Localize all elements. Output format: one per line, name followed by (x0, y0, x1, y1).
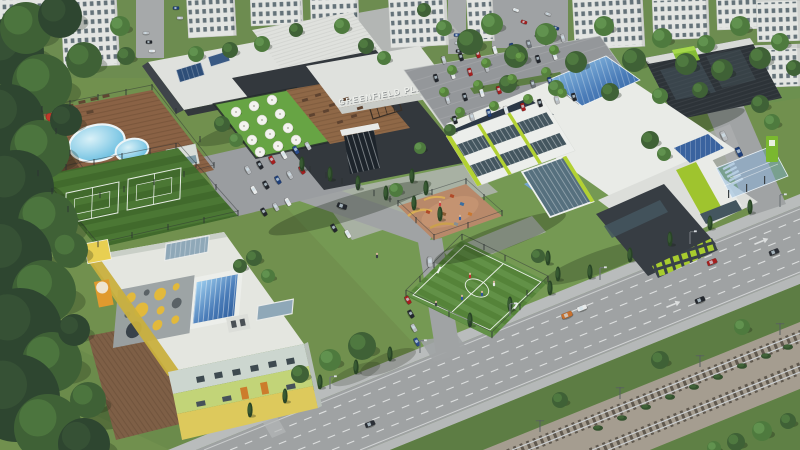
tree-highlight (558, 89, 564, 95)
person-body (481, 293, 483, 297)
tree-highlight (60, 316, 78, 334)
person (439, 201, 441, 206)
fence-post (470, 321, 471, 327)
tree-highlight (516, 53, 522, 59)
tree-highlight (415, 143, 422, 150)
bush (689, 384, 699, 390)
tree-highlight (189, 47, 198, 56)
tree-highlight (418, 4, 426, 12)
tree-highlight (772, 35, 782, 45)
bush (665, 394, 675, 400)
fence-post (68, 206, 69, 212)
fence-post (176, 108, 177, 114)
tree-highlight (482, 59, 488, 65)
cypress-highlight (410, 170, 413, 180)
tree-highlight (550, 46, 556, 52)
light-pole (509, 304, 510, 316)
tree-highlight (445, 125, 452, 132)
tree-highlight (754, 423, 765, 434)
tree-highlight (234, 260, 242, 268)
mast-pole (780, 323, 781, 335)
bush (593, 425, 603, 431)
tree-highlight (732, 18, 743, 29)
fence-post (358, 184, 359, 190)
fence-post (70, 100, 71, 106)
tree-highlight (359, 39, 368, 48)
bush (783, 344, 793, 350)
cypress-highlight (248, 404, 251, 414)
cypress-highlight (283, 390, 286, 400)
fence-post (154, 179, 155, 185)
cypress-highlight (548, 282, 551, 292)
person-body (376, 255, 378, 259)
umbrella-pole (261, 119, 263, 121)
bush-highlight (690, 385, 696, 388)
tree-highlight (553, 393, 562, 402)
car-window (178, 17, 180, 19)
aerial-architectural-render: GREENFIELD PLAZA GREENFIELD PLAZA (0, 0, 800, 450)
cypress-highlight (300, 158, 303, 168)
tree-highlight (787, 61, 796, 70)
fence-post (484, 244, 485, 250)
tree-highlight (602, 85, 612, 95)
apartment-building (186, 0, 236, 38)
mast-arm (616, 387, 624, 388)
fence-post (520, 304, 521, 310)
umbrella-pole (287, 127, 289, 129)
cypress-highlight (708, 217, 711, 227)
car-window (150, 50, 152, 52)
fence-post (390, 196, 391, 202)
apartment-windows (188, 0, 235, 36)
fence-post (132, 232, 133, 238)
tree-highlight (781, 414, 790, 423)
tree-highlight (262, 270, 270, 278)
mast-arm (696, 355, 704, 356)
tree-highlight (17, 59, 50, 92)
atrium-mullions (193, 274, 238, 323)
bush (737, 363, 747, 369)
tree-highlight (73, 385, 93, 405)
tree-highlight (4, 6, 33, 35)
mast-pole (540, 420, 541, 432)
umbrella-pole (269, 133, 271, 135)
light-head (334, 375, 337, 377)
car-window (174, 7, 176, 9)
person (493, 281, 495, 286)
umbrella-pole (277, 145, 279, 147)
person-head (461, 295, 463, 297)
fence-post (398, 200, 399, 206)
person-body (469, 275, 471, 279)
fence-post (52, 188, 53, 194)
fence-post (100, 192, 101, 198)
fence-post (56, 128, 57, 134)
fence-post (310, 166, 311, 172)
fence-post (342, 178, 343, 184)
cypress-highlight (668, 233, 671, 243)
fence-post (200, 136, 201, 142)
tree-highlight (321, 351, 333, 363)
light-pole (329, 377, 330, 389)
person-body (439, 203, 441, 207)
person (481, 291, 483, 296)
fence-post (374, 190, 375, 196)
light-pole (419, 341, 420, 353)
tree-highlight (524, 95, 530, 101)
tree-highlight (350, 334, 365, 349)
cypress-highlight (748, 201, 751, 211)
tree-highlight (751, 49, 763, 61)
tree-highlight (459, 31, 473, 45)
mast-pole (620, 387, 621, 399)
tree-highlight (52, 106, 70, 124)
person-body (459, 217, 461, 221)
person-head (435, 301, 437, 303)
tree-highlight (654, 30, 665, 41)
light-head (604, 266, 607, 268)
tree-highlight (55, 235, 75, 255)
fence-post (527, 290, 528, 296)
person-head (481, 291, 483, 293)
person-body (461, 297, 463, 301)
mast-arm (776, 323, 784, 324)
tree-highlight (292, 367, 302, 377)
apartment-windows (252, 0, 302, 24)
light-pole (599, 268, 600, 280)
bush-highlight (784, 345, 790, 348)
bush-highlight (666, 395, 672, 398)
car-window (144, 32, 146, 34)
bush-highlight (618, 416, 624, 419)
tree-highlight (390, 184, 398, 192)
mast-pole (700, 355, 701, 367)
car-window (455, 34, 457, 36)
tree-highlight (448, 66, 454, 72)
bush-highlight (714, 375, 720, 378)
umbrella-pole (271, 99, 273, 101)
light-head (784, 193, 787, 195)
mast-arm (536, 420, 544, 421)
fence-post (238, 210, 239, 216)
fence-post (492, 332, 493, 338)
fence-post (466, 178, 467, 184)
fence-post (70, 150, 71, 156)
fence-post (176, 143, 177, 149)
tree-highlight (483, 15, 495, 27)
fence-post (98, 241, 99, 247)
light-pole (689, 232, 690, 244)
tree-highlight (752, 97, 762, 107)
fence-post (214, 162, 215, 168)
person (459, 215, 461, 220)
pylon-logo (769, 140, 775, 146)
person-head (469, 273, 471, 275)
fence-post (184, 171, 185, 177)
school-sign-pylon (766, 136, 778, 162)
light-pole (779, 195, 780, 207)
car-window (147, 41, 149, 43)
tree-highlight (440, 88, 446, 94)
fence-post (502, 210, 503, 216)
fence-post (216, 184, 217, 190)
umbrella-pole (279, 113, 281, 115)
tree-highlight (230, 134, 238, 142)
tree-highlight (698, 37, 708, 47)
light-head (694, 230, 697, 232)
tree-highlight (335, 19, 344, 28)
tree-highlight (118, 49, 128, 59)
fence-post (505, 255, 506, 261)
umbrella-pole (295, 139, 297, 141)
cypress-highlight (354, 361, 357, 371)
car (173, 7, 180, 11)
person-head (493, 281, 495, 283)
tree-highlight (708, 442, 716, 450)
fence-post (468, 222, 469, 228)
light-head (514, 302, 517, 304)
fence-post (150, 148, 151, 154)
tree-highlight (765, 115, 774, 124)
tree-highlight (642, 133, 652, 143)
fence-post (38, 170, 39, 176)
fence-post (152, 84, 153, 90)
fence-post (98, 94, 99, 100)
fence-post (168, 224, 169, 230)
cypress-highlight (412, 197, 415, 207)
fence-post (548, 276, 549, 282)
fence-post (126, 89, 127, 95)
tree-highlight (549, 81, 558, 90)
bush (713, 374, 723, 380)
tree-highlight (69, 45, 89, 65)
person (461, 295, 463, 300)
tree-highlight (474, 81, 480, 87)
bush (761, 353, 771, 359)
bush-highlight (762, 354, 768, 357)
tree-highlight (624, 50, 637, 63)
tree-highlight (215, 117, 224, 126)
fence-post (449, 311, 450, 317)
car (149, 50, 156, 54)
cypress-highlight (438, 208, 441, 218)
bush-highlight (594, 426, 600, 429)
car (177, 17, 184, 21)
tree-highlight (508, 75, 514, 81)
umbrella-pole (243, 125, 245, 127)
cypress-highlight (384, 187, 387, 197)
entrance-mullions (344, 130, 380, 174)
tree-highlight (542, 68, 548, 74)
umbrella-pole (253, 105, 255, 107)
cypress-highlight (556, 268, 559, 278)
fence-post (196, 162, 197, 168)
person-body (493, 283, 495, 287)
umbrella-pole (235, 111, 237, 113)
tree-highlight (652, 353, 662, 363)
canopy-post (764, 176, 765, 184)
umbrella-pole (251, 139, 253, 141)
person-body (435, 303, 437, 307)
umbrella-pole (259, 151, 261, 153)
tree-highlight (112, 18, 123, 29)
fence-post (406, 290, 407, 296)
bush-highlight (642, 405, 648, 408)
person (469, 273, 471, 278)
car-window (457, 50, 459, 52)
fence-post (66, 164, 67, 170)
tree-highlight (537, 25, 549, 37)
fence-post (124, 186, 125, 192)
fence-post (326, 172, 327, 178)
apartment-building (250, 0, 303, 26)
scene-svg: GREENFIELD PLAZA GREENFIELD PLAZA (0, 0, 800, 450)
tree-highlight (378, 52, 386, 60)
bush (617, 415, 627, 421)
tree-highlight (247, 251, 256, 260)
person-head (439, 201, 441, 203)
car (143, 32, 150, 36)
person (435, 301, 437, 306)
person-head (376, 253, 378, 255)
tree-highlight (456, 108, 462, 114)
fence-post (42, 106, 43, 112)
fence-post (122, 153, 123, 159)
person (376, 253, 378, 258)
tree-highlight (437, 21, 446, 30)
tree-highlight (677, 55, 689, 67)
light-head (424, 339, 427, 341)
tree-highlight (290, 24, 298, 32)
fence-post (432, 189, 433, 195)
tree-highlight (728, 435, 738, 445)
tree-highlight (62, 422, 91, 450)
fence-post (434, 234, 435, 240)
fence-post (204, 217, 205, 223)
fence-post (94, 159, 95, 165)
district-street (136, 0, 164, 58)
tree-highlight (693, 83, 702, 92)
bush-highlight (738, 364, 744, 367)
tree-highlight (735, 320, 744, 329)
tree-highlight (19, 399, 56, 436)
bush (641, 404, 651, 410)
cypress-highlight (628, 249, 631, 259)
cypress-highlight (424, 182, 427, 192)
tree-highlight (658, 148, 666, 156)
cypress-highlight (388, 348, 391, 358)
canopy-post (728, 190, 729, 198)
car-window (428, 259, 432, 263)
tree-highlight (490, 102, 496, 108)
cypress-highlight (546, 252, 549, 262)
tree-highlight (596, 18, 607, 29)
tree-highlight (713, 61, 725, 73)
fence-post (416, 217, 417, 223)
tree-highlight (567, 53, 579, 65)
cypress-highlight (588, 266, 591, 276)
fence-post (462, 234, 463, 240)
person-head (459, 215, 461, 217)
tree-highlight (653, 89, 662, 98)
tree-highlight (255, 37, 264, 46)
car (146, 41, 153, 45)
fence-post (420, 276, 421, 282)
canopy-post (746, 184, 747, 192)
tree-highlight (223, 43, 232, 52)
cypress-highlight (328, 168, 331, 178)
fence-post (434, 262, 435, 268)
tree-highlight (532, 250, 540, 258)
fence-post (484, 194, 485, 200)
cypress-highlight (318, 376, 321, 386)
